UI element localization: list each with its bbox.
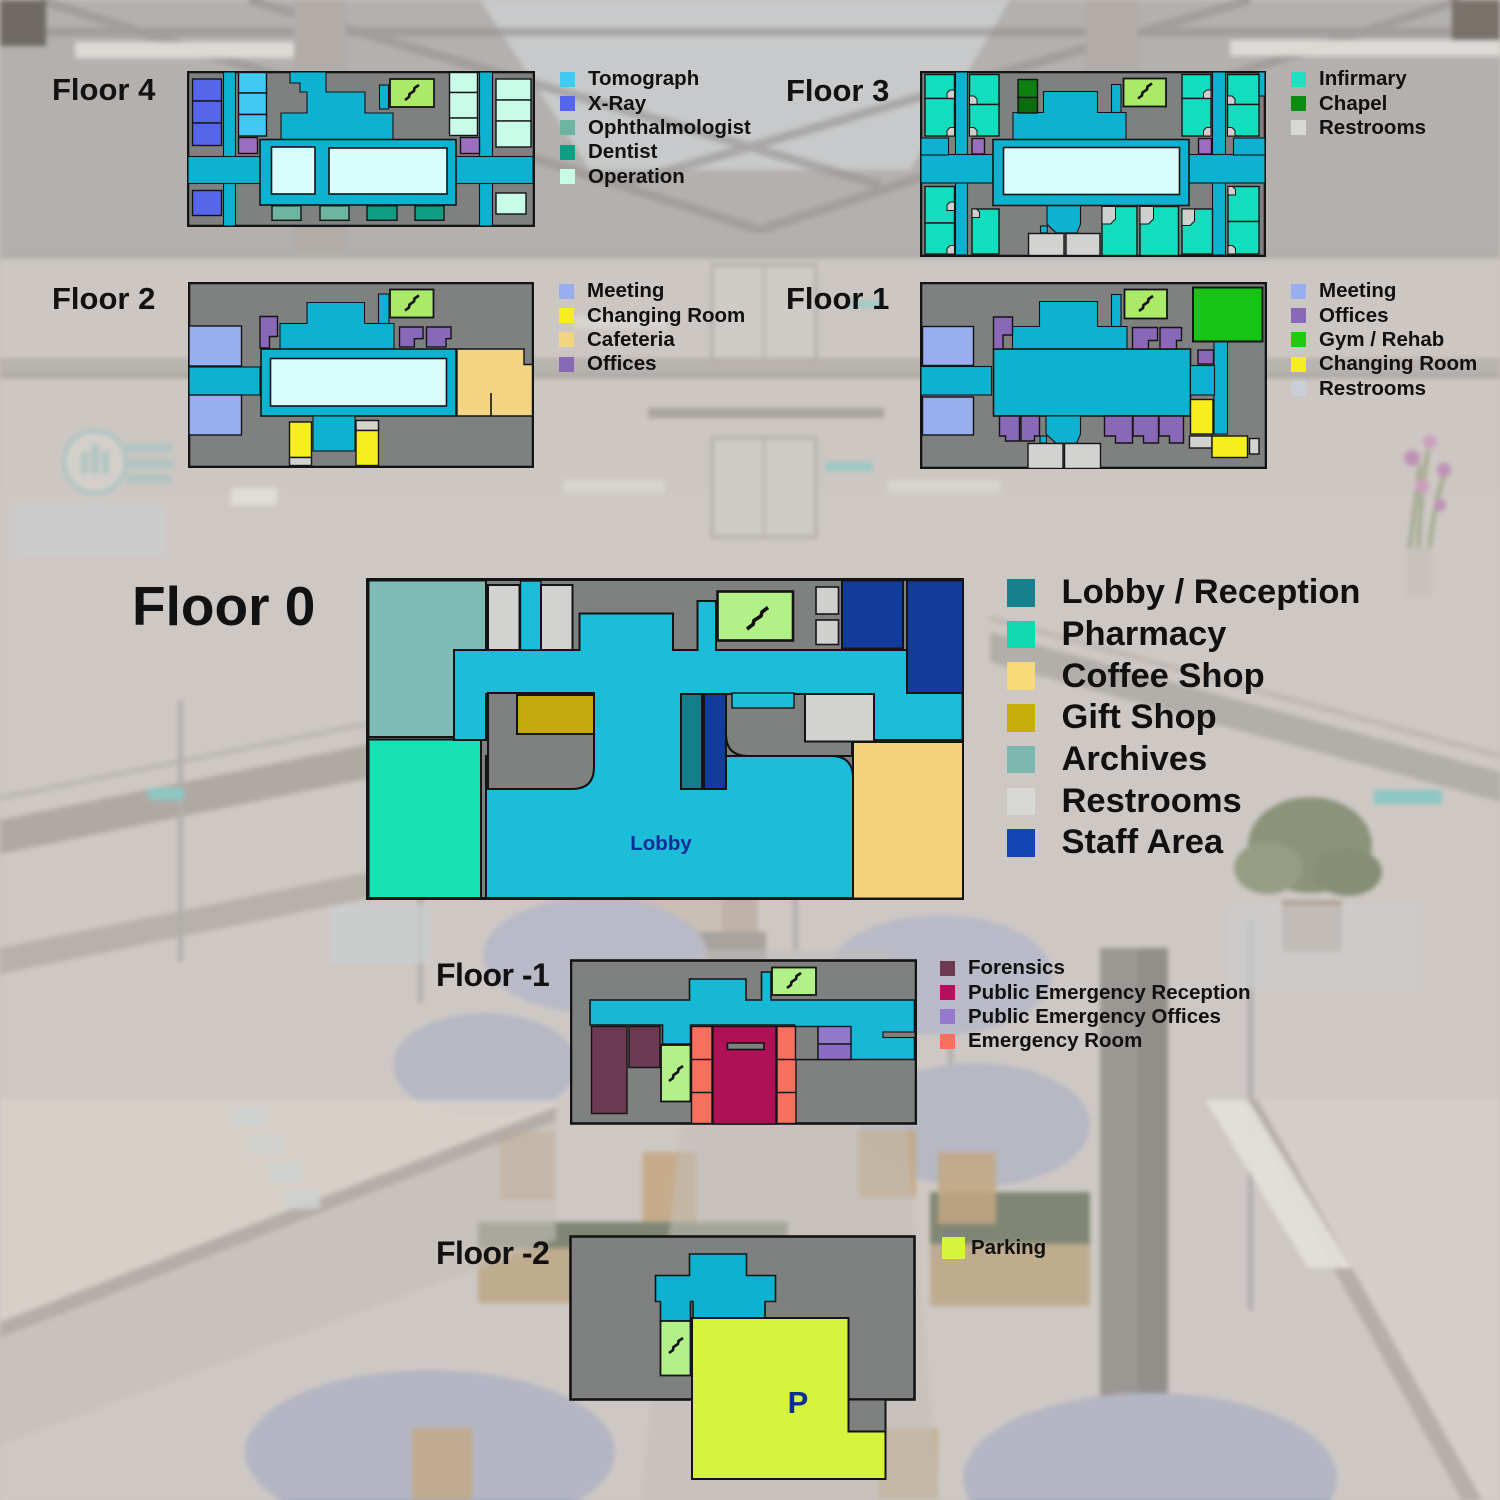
- svg-text:Lobby: Lobby: [630, 832, 692, 855]
- svg-text:P: P: [788, 1385, 809, 1420]
